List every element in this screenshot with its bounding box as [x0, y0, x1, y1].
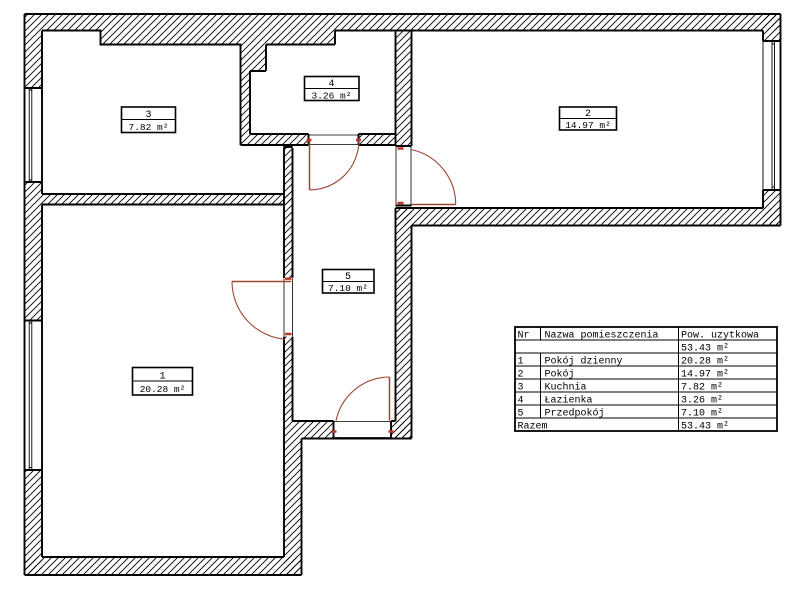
svg-text:Nr: Nr — [518, 331, 530, 342]
svg-text:Razem: Razem — [518, 422, 548, 433]
svg-text:20.28 m²: 20.28 m² — [140, 384, 186, 395]
svg-text:4: 4 — [328, 79, 334, 90]
svg-text:Pokój dzienny: Pokój dzienny — [545, 356, 623, 368]
svg-text:20.28 m²: 20.28 m² — [681, 357, 729, 368]
svg-text:53.43 m²: 53.43 m² — [681, 422, 729, 433]
svg-text:5: 5 — [518, 409, 524, 420]
svg-text:3: 3 — [145, 110, 151, 121]
svg-text:14.97 m²: 14.97 m² — [565, 120, 611, 131]
svg-text:14.97 m²: 14.97 m² — [681, 370, 729, 381]
svg-text:1: 1 — [159, 371, 165, 382]
svg-text:Kuchnia: Kuchnia — [545, 382, 587, 394]
svg-text:7.82 m²: 7.82 m² — [681, 383, 723, 394]
svg-text:2: 2 — [518, 370, 524, 381]
svg-text:Łazienka: Łazienka — [545, 395, 593, 407]
svg-text:3: 3 — [518, 383, 524, 394]
svg-text:Przedpokój: Przedpokój — [545, 408, 605, 420]
svg-text:7.82 m²: 7.82 m² — [129, 122, 169, 133]
svg-text:3.26 m²: 3.26 m² — [681, 396, 723, 407]
svg-text:4: 4 — [518, 396, 524, 407]
svg-text:1: 1 — [518, 357, 524, 368]
svg-text:53.43 m²: 53.43 m² — [681, 344, 729, 355]
svg-text:Pokój: Pokój — [545, 369, 575, 381]
svg-text:5: 5 — [345, 272, 351, 283]
svg-text:3.26 m²: 3.26 m² — [312, 91, 352, 102]
svg-text:Pow. uzytkowa: Pow. uzytkowa — [681, 330, 759, 342]
svg-text:7.10 m²: 7.10 m² — [681, 409, 723, 420]
svg-text:7.10 m²: 7.10 m² — [328, 283, 368, 294]
svg-text:Nazwa pomieszczenia: Nazwa pomieszczenia — [545, 330, 659, 342]
svg-text:2: 2 — [585, 109, 591, 120]
